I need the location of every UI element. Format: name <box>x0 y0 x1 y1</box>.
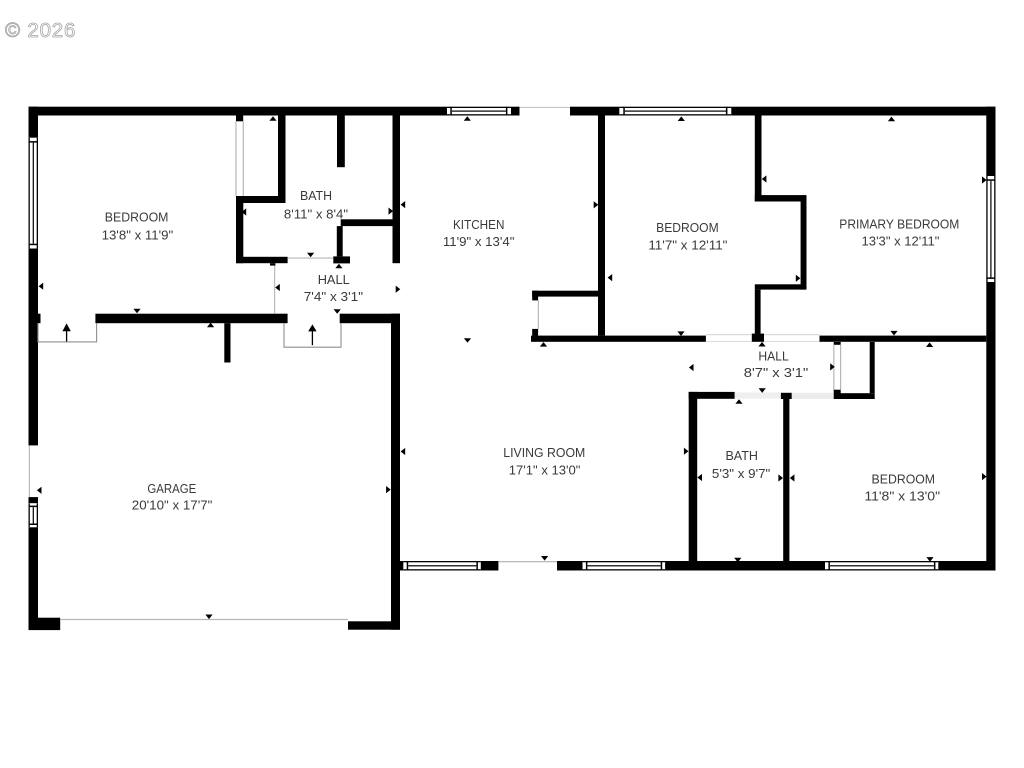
svg-text:BEDROOM: BEDROOM <box>656 220 719 235</box>
svg-text:BEDROOM: BEDROOM <box>105 209 169 224</box>
svg-text:13'3" x 12'11": 13'3" x 12'11" <box>862 233 940 248</box>
svg-text:© 2026: © 2026 <box>5 19 76 42</box>
svg-text:11'9" x 13'4": 11'9" x 13'4" <box>443 234 515 249</box>
svg-text:20'10" x 17'7": 20'10" x 17'7" <box>132 497 213 512</box>
svg-text:5'3" x 9'7": 5'3" x 9'7" <box>712 466 771 481</box>
svg-text:8'7" x 3'1": 8'7" x 3'1" <box>744 365 809 380</box>
svg-text:KITCHEN: KITCHEN <box>453 217 504 232</box>
svg-text:11'8" x 13'0": 11'8" x 13'0" <box>864 488 940 503</box>
svg-text:11'7" x 12'11": 11'7" x 12'11" <box>648 237 727 252</box>
svg-text:HALL: HALL <box>758 348 788 363</box>
svg-text:7'4" x 3'1": 7'4" x 3'1" <box>304 289 364 304</box>
svg-text:13'8" x 11'9": 13'8" x 11'9" <box>102 227 174 242</box>
svg-text:17'1" x 13'0": 17'1" x 13'0" <box>509 463 581 478</box>
svg-text:BEDROOM: BEDROOM <box>872 471 936 486</box>
svg-text:BATH: BATH <box>300 188 332 203</box>
svg-text:BATH: BATH <box>725 448 758 463</box>
svg-text:LIVING ROOM: LIVING ROOM <box>503 445 585 460</box>
svg-text:HALL: HALL <box>318 272 350 287</box>
svg-text:GARAGE: GARAGE <box>147 481 196 496</box>
svg-text:PRIMARY BEDROOM: PRIMARY BEDROOM <box>839 216 959 231</box>
svg-text:8'11" x 8'4": 8'11" x 8'4" <box>284 207 348 222</box>
